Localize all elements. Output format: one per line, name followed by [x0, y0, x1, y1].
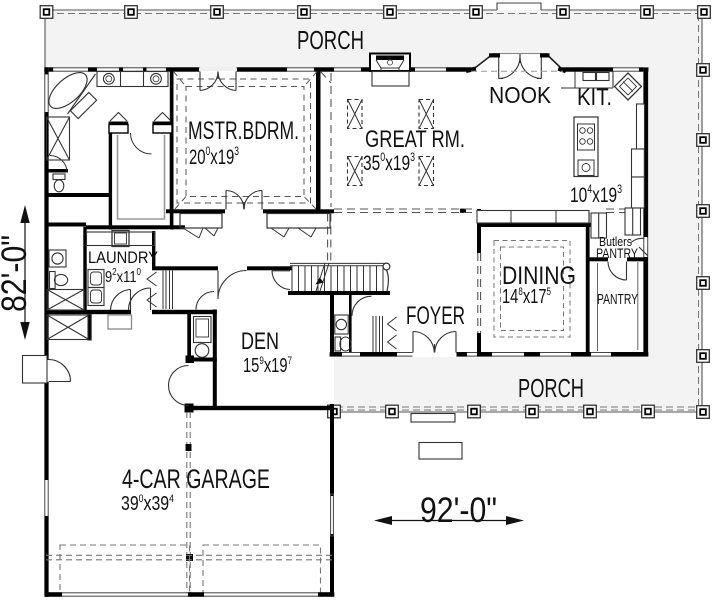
- svg-text:LAUNDRY: LAUNDRY: [88, 248, 158, 267]
- svg-text:KIT.: KIT.: [577, 84, 612, 111]
- svg-text:NOOK: NOOK: [489, 82, 552, 108]
- svg-text:PANTRY: PANTRY: [597, 291, 638, 308]
- svg-text:PORCH: PORCH: [518, 373, 584, 403]
- svg-text:200x193: 200x193: [189, 144, 239, 169]
- svg-text:4-CAR GARAGE: 4-CAR GARAGE: [122, 464, 270, 494]
- svg-text:92'-0": 92'-0": [420, 491, 497, 530]
- svg-text:82'-0": 82'-0": [0, 235, 34, 312]
- svg-text:PORCH: PORCH: [297, 25, 364, 55]
- svg-text:390x394: 390x394: [121, 493, 174, 515]
- svg-text:159x197: 159x197: [243, 355, 292, 377]
- svg-text:PANTRY: PANTRY: [596, 245, 638, 261]
- svg-text:GREAT RM.: GREAT RM.: [365, 126, 465, 153]
- svg-text:FOYER: FOYER: [406, 302, 465, 330]
- svg-text:104x193: 104x193: [570, 182, 622, 207]
- svg-text:92x110: 92x110: [105, 267, 141, 286]
- svg-text:DEN: DEN: [241, 328, 279, 355]
- svg-text:MSTR.BDRM.: MSTR.BDRM.: [188, 117, 299, 145]
- svg-text:350x193: 350x193: [363, 150, 415, 175]
- svg-text:148x175: 148x175: [502, 286, 551, 308]
